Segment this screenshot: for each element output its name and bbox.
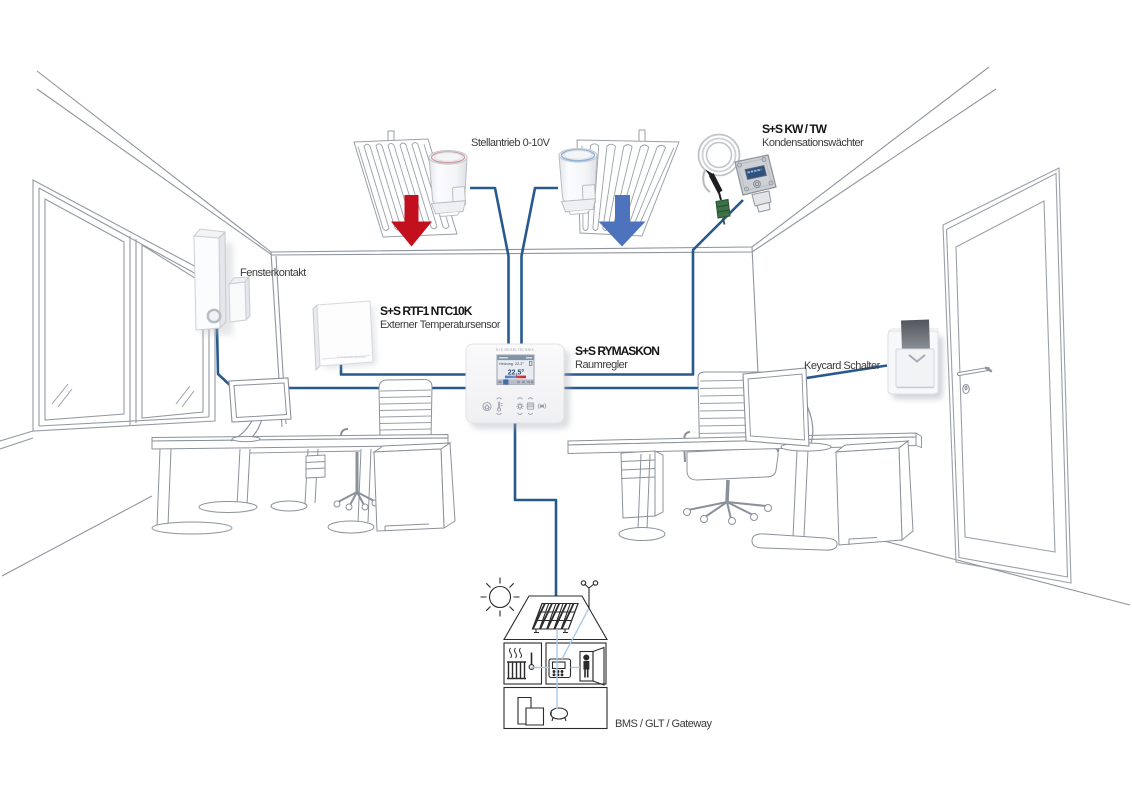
svg-text:Raumregler: Raumregler [575,359,628,371]
svg-text:22.2°: 22.2° [515,362,524,366]
svg-text:Keycard Schalter: Keycard Schalter [804,360,881,372]
svg-text:S+S RYMASKON: S+S RYMASKON [575,344,659,358]
svg-text:S+S KW / TW: S+S KW / TW [762,122,828,136]
svg-text:BMS / GLT / Gateway: BMS / GLT / Gateway [615,718,712,730]
svg-text:S+S REGELTECHNIK: S+S REGELTECHNIK [496,348,535,352]
svg-text:Kondensationswächter: Kondensationswächter [762,137,864,149]
svg-text:Heizung: Heizung [499,362,513,366]
svg-text:Fensterkontakt: Fensterkontakt [240,267,306,279]
svg-text:S+S RTF1 NTC10K: S+S RTF1 NTC10K [380,304,473,318]
svg-text:Externer Temperatursensor: Externer Temperatursensor [380,319,501,331]
svg-text:Stellantrieb 0-10V: Stellantrieb 0-10V [471,137,551,149]
svg-text:S+S REGELTECHNIK: S+S REGELTECHNIK [337,355,366,359]
svg-text:22,5°: 22,5° [508,369,525,377]
